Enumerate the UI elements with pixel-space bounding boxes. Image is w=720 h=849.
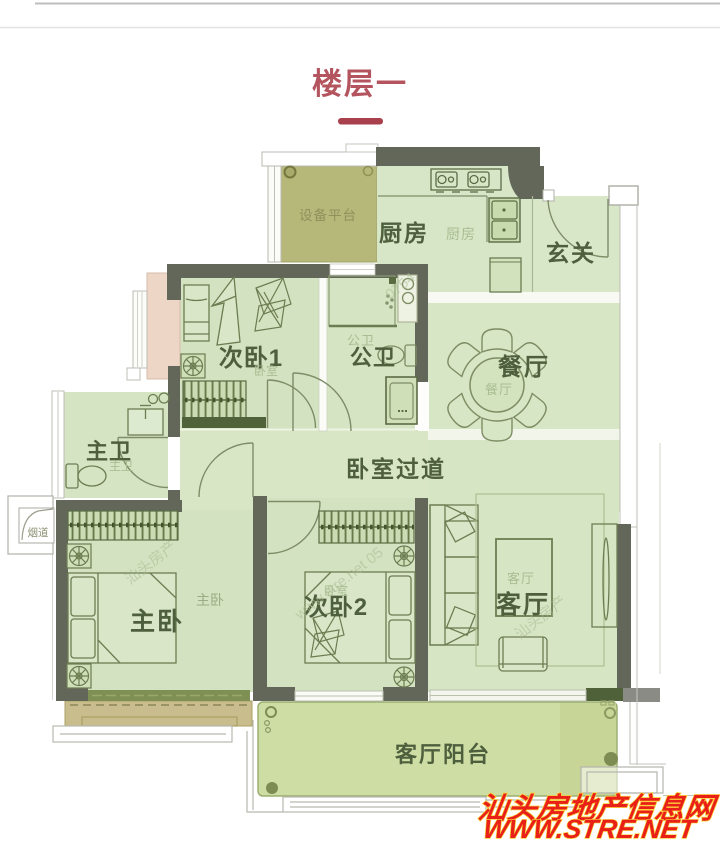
svg-text:卧室: 卧室: [254, 363, 278, 378]
svg-text:客厅阳台: 客厅阳台: [395, 742, 491, 767]
svg-text:设备平台: 设备平台: [299, 207, 357, 223]
svg-text:餐厅: 餐厅: [485, 382, 513, 397]
svg-text:厨房: 厨房: [379, 220, 429, 246]
svg-text:主卧: 主卧: [196, 592, 224, 608]
svg-text:餐厅: 餐厅: [498, 354, 550, 381]
svg-text:厨房: 厨房: [446, 226, 476, 242]
svg-text:WWW.STRE.NET: WWW.STRE.NET: [481, 814, 699, 844]
svg-text:主卫: 主卫: [109, 459, 133, 473]
svg-text:公卫: 公卫: [350, 345, 396, 370]
svg-text:卧室过道: 卧室过道: [346, 456, 446, 482]
svg-text:玄关: 玄关: [546, 240, 596, 266]
svg-text:烟道: 烟道: [28, 526, 49, 539]
svg-text:公卫: 公卫: [347, 333, 375, 348]
svg-text:客厅: 客厅: [507, 571, 535, 586]
svg-text:主卧: 主卧: [130, 608, 184, 636]
svg-text:楼层一: 楼层一: [312, 68, 408, 101]
